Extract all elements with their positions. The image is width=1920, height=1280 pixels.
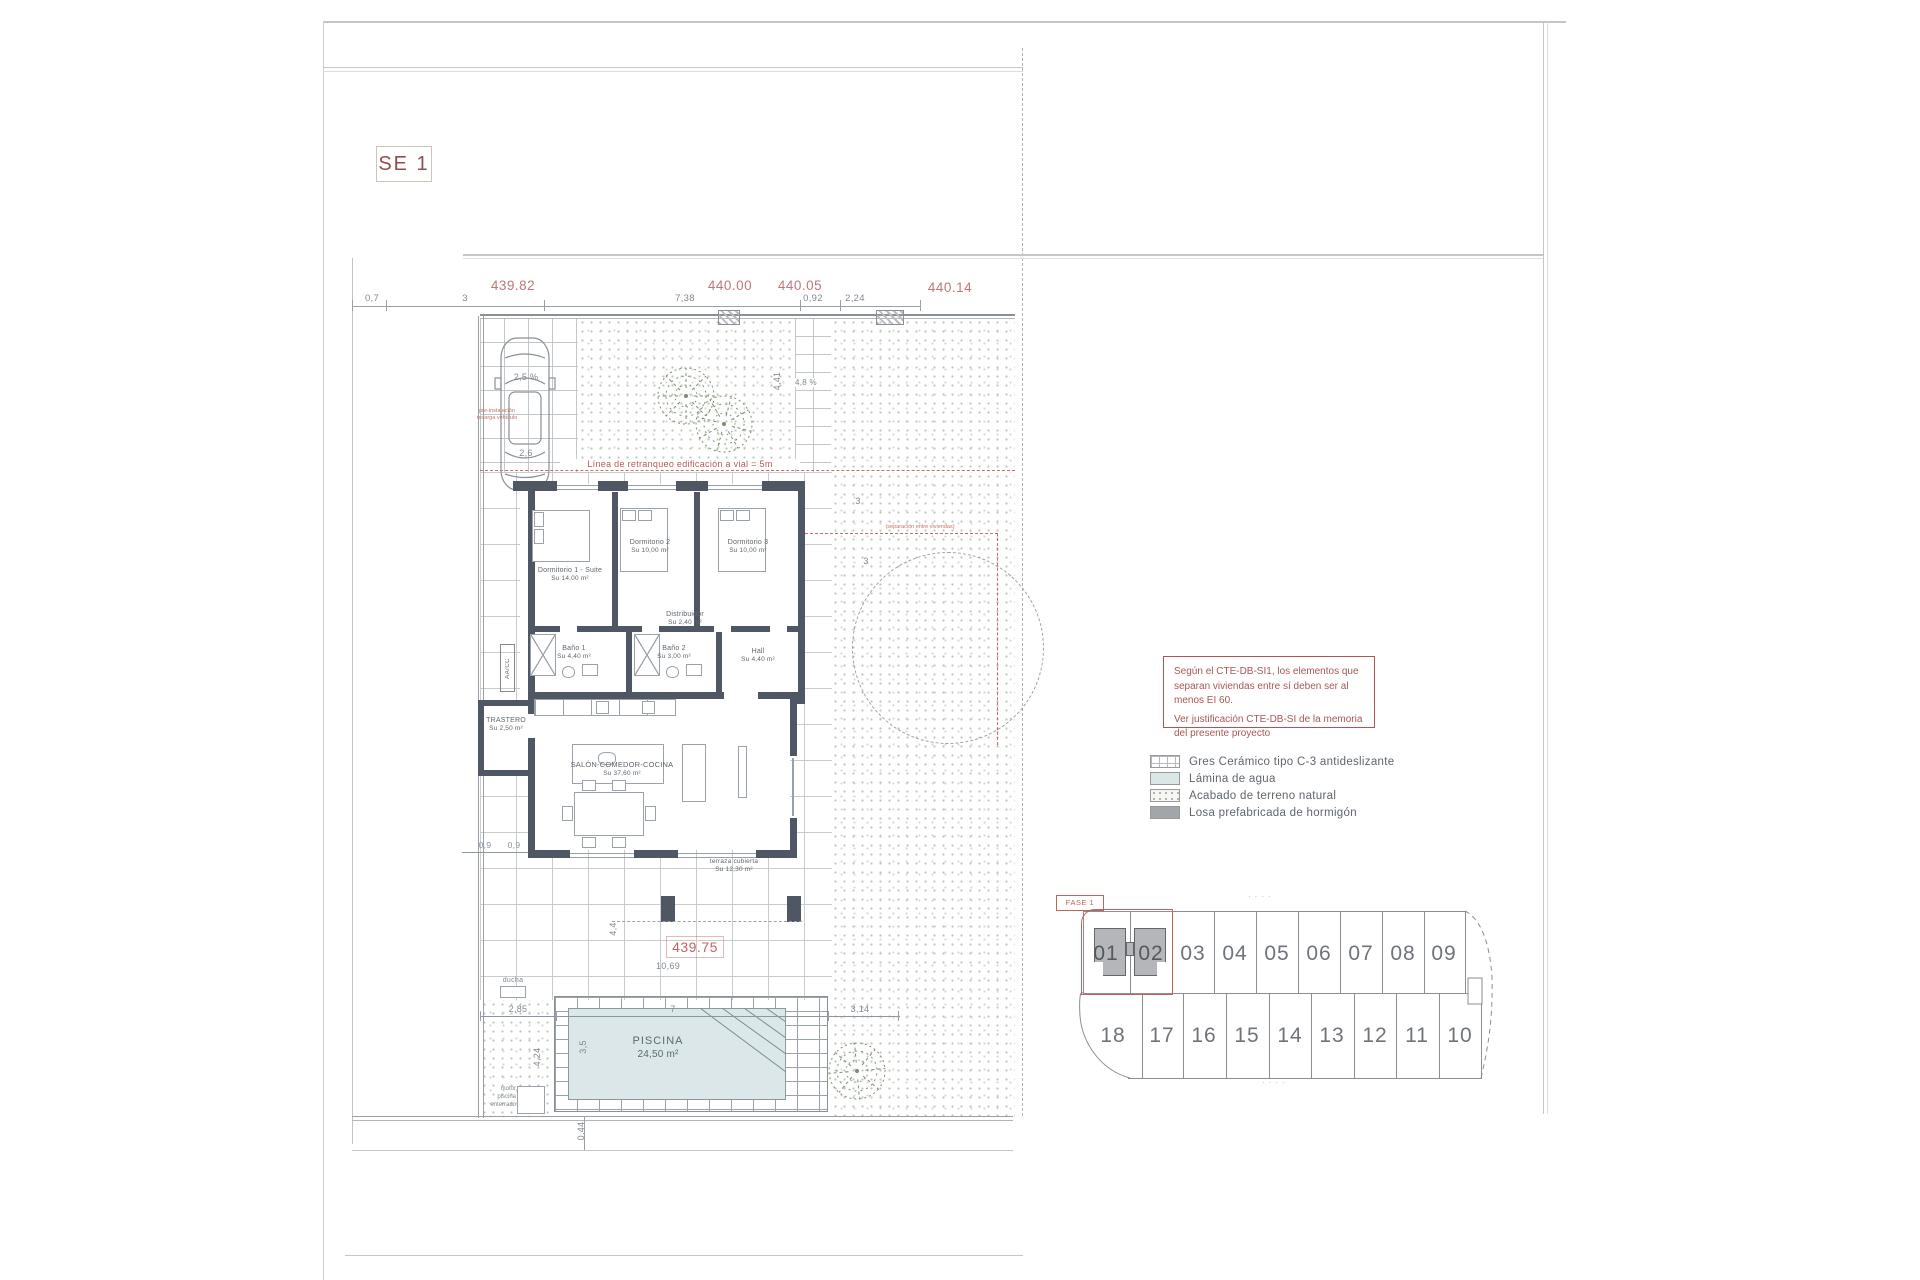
elevation-440-00: 440.00 <box>695 278 765 293</box>
ceramic-swatch-icon <box>1150 755 1180 768</box>
roof-edge-dashed <box>612 921 802 922</box>
lot-12: 12 <box>1353 1024 1397 1048</box>
water-swatch-icon <box>1150 772 1180 785</box>
terrace-pillar-right <box>787 896 801 922</box>
kitchen-sink <box>596 701 609 714</box>
legend-item-ceramic: Gres Cerámico tipo C-3 antideslizante <box>1150 755 1490 768</box>
lot-07: 07 <box>1339 942 1383 966</box>
elevation-439-82: 439.82 <box>478 278 548 293</box>
dim-3-right-lower: 3 <box>856 556 876 566</box>
room-label-dorm1: Dormitorio 1 - SuiteSu 14,00 m² <box>530 566 610 584</box>
wall-salon-bottom-seg2 <box>634 850 678 858</box>
wall-salon-right-a <box>790 704 797 756</box>
dining-table <box>574 792 644 836</box>
room-label-salon: SALÓN-COMEDOR-COCINASu 37,60 m² <box>564 760 680 778</box>
legend: Gres Cerámico tipo C-3 antideslizante Lá… <box>1150 755 1490 823</box>
garden-front-right <box>831 318 1015 472</box>
lot-18: 18 <box>1091 1024 1135 1048</box>
dim-line-top <box>352 306 920 307</box>
side-path-paving <box>795 318 831 472</box>
pool-motor-box <box>517 1086 545 1114</box>
lot-09: 09 <box>1422 942 1466 966</box>
wall-right-upper <box>798 484 805 704</box>
sheet-right-border-a <box>1543 22 1544 1114</box>
sheet-code: SE 1 <box>378 153 429 176</box>
room-label-terraza: terraza cubiertaSu 12,30 m² <box>698 858 770 875</box>
room-label-trastero: TRASTEROSu 2,50 m² <box>482 716 530 734</box>
wall-jog <box>790 697 805 704</box>
room-label-hall: HallSu 4,40 m² <box>732 647 784 665</box>
sheet-bottom-line <box>345 1255 1023 1256</box>
room-label-dorm2: Dormitorio 2Su 10,00 m² <box>614 538 686 556</box>
aacc-unit: AA/CC <box>500 644 515 692</box>
tv-bench <box>738 746 747 798</box>
wall-top-seg1 <box>513 481 557 491</box>
kerb-line-b <box>463 258 1543 259</box>
lot-13: 13 <box>1310 1024 1354 1048</box>
level-439-75: 439.75 <box>672 939 718 955</box>
terrain-swatch-icon <box>1150 789 1180 802</box>
turning-circle-dashed <box>852 552 1044 744</box>
elevation-440-14: 440.14 <box>915 280 985 295</box>
lot-05: 05 <box>1255 942 1299 966</box>
kerb-line-a <box>463 254 1543 256</box>
wall-trastero-left <box>478 700 484 776</box>
wall-partition-d2-d3 <box>694 492 700 628</box>
dim-4-24: 4,24 <box>532 1042 542 1072</box>
sheet-left-border <box>323 21 324 1280</box>
street-line-bottom <box>352 1150 1013 1151</box>
wall-baths-bottom <box>534 692 798 699</box>
wall-salon-bottom-seg3 <box>756 850 797 858</box>
dim-7-38: 7,38 <box>668 293 702 304</box>
room-label-distribuidor: DistribuidorSu 2,40 m² <box>654 610 716 628</box>
tree-icon-front <box>648 362 768 472</box>
legend-item-water: Lámina de agua <box>1150 772 1490 785</box>
inner-top-line-a <box>323 67 1023 68</box>
plot-boundary-bottom-a <box>352 1116 1013 1117</box>
separation-note: (separación entre viviendas) <box>860 524 980 531</box>
inner-top-line-b <box>323 71 1023 72</box>
lot-15: 15 <box>1225 1024 1269 1048</box>
dim-3-14: 3,14 <box>842 1004 878 1014</box>
wall-bath-partition-1 <box>626 632 632 694</box>
room-label-bath1: Baño 1Su 4,40 m² <box>548 644 600 662</box>
dim-7: 7 <box>660 1004 686 1014</box>
dim-3-5: 3,5 <box>578 1034 588 1060</box>
ev-charge-note: pre-instalación recarga vehículo <box>474 408 520 422</box>
side-slope-label: 4,8 % <box>788 378 824 387</box>
sink-bath2 <box>686 664 702 676</box>
sheet-right-border-b <box>1547 22 1548 1114</box>
outdoor-shower <box>500 986 526 998</box>
dim-4-41: 4,41 <box>772 364 782 398</box>
dim-2-85: 2,85 <box>500 1004 536 1014</box>
room-label-dorm3: Dormitorio 3Su 10,00 m² <box>712 538 784 556</box>
lot-01: 01 <box>1084 942 1128 966</box>
sheet-code-box: SE 1 <box>376 146 432 182</box>
lot-14: 14 <box>1268 1024 1312 1048</box>
wall-trastero-top <box>478 700 535 706</box>
dim-3: 3 <box>456 293 474 304</box>
cte-note-box: Según el CTE-DB-SI1, los elementos que s… <box>1163 656 1375 728</box>
pool-motor-note: motorpiscinaenterrado <box>478 1086 516 1109</box>
elevation-440-05: 440.05 <box>766 278 834 293</box>
legend-item-concrete: Losa prefabricada de hormigón <box>1150 806 1490 819</box>
lot-16: 16 <box>1182 1024 1226 1048</box>
lot-06: 06 <box>1297 942 1341 966</box>
toilet-bath2 <box>666 666 679 678</box>
lot-10: 10 <box>1438 1024 1482 1048</box>
dim-0-9-b: 0,9 <box>503 840 525 850</box>
level-439-75-box: 439.75 <box>666 936 724 958</box>
dim-4-4: 4,4 <box>608 916 618 942</box>
plot-boundary-top-b <box>480 318 1015 319</box>
ducha-label: ducha <box>496 977 530 984</box>
pool-label: PISCINA 24,50 m² <box>608 1034 708 1061</box>
drive-slope-label: 2,5 % <box>505 372 547 382</box>
toilet-bath1 <box>562 666 575 678</box>
street-edge-line <box>352 258 353 1144</box>
lot-03: 03 <box>1171 942 1215 966</box>
separation-line-v <box>997 533 998 745</box>
utility-box-1 <box>718 310 740 325</box>
dim-10-69: 10,69 <box>648 961 688 971</box>
dim-0-9-a: 0,9 <box>474 840 496 850</box>
wall-trastero-bottom <box>478 770 535 776</box>
site-plan-sheet: SE 1 439.82 440.00 440.05 440.14 0,7 3 7… <box>0 0 1920 1280</box>
dim-3-right-upper: 3 <box>848 496 868 506</box>
lot-11: 11 <box>1395 1024 1439 1048</box>
wall-bath-partition-2 <box>716 632 722 694</box>
dim-2-24: 2,24 <box>840 293 870 304</box>
dim-0-92: 0,92 <box>798 293 828 304</box>
plot-boundary-bottom-b <box>352 1120 1013 1121</box>
wall-top-seg2 <box>598 481 628 491</box>
legend-item-terrain: Acabado de terreno natural <box>1150 789 1490 802</box>
concrete-swatch-icon <box>1150 806 1180 819</box>
lot-08: 08 <box>1381 942 1425 966</box>
cte-note-p1: Según el CTE-DB-SI1, los elementos que s… <box>1174 665 1364 709</box>
cte-note-p2: Ver justificación CTE-DB-SI de la memori… <box>1174 713 1364 742</box>
dim-0-7: 0,7 <box>360 293 384 304</box>
lot-02: 02 <box>1129 942 1173 966</box>
utility-box-2 <box>876 310 904 325</box>
wall-salon-bottom-seg1 <box>528 850 570 858</box>
pool-steps <box>700 1008 786 1100</box>
kitchen-hob <box>642 701 655 714</box>
sheet-top-line <box>323 21 1566 23</box>
section-cut-dashed-line <box>1022 48 1023 1116</box>
sofa <box>682 744 706 802</box>
plot-boundary-top-a <box>480 314 1015 316</box>
lot-17: 17 <box>1140 1024 1184 1048</box>
car-width-label: 2,6 <box>505 448 547 458</box>
wall-partition-d1-d2 <box>612 492 618 628</box>
lot-04: 04 <box>1213 942 1257 966</box>
terrace-pillar-left <box>661 896 675 922</box>
wall-top-seg3 <box>676 481 708 491</box>
sink-bath1 <box>582 664 598 676</box>
room-label-bath2: Baño 2Su 3,00 m² <box>648 644 700 662</box>
